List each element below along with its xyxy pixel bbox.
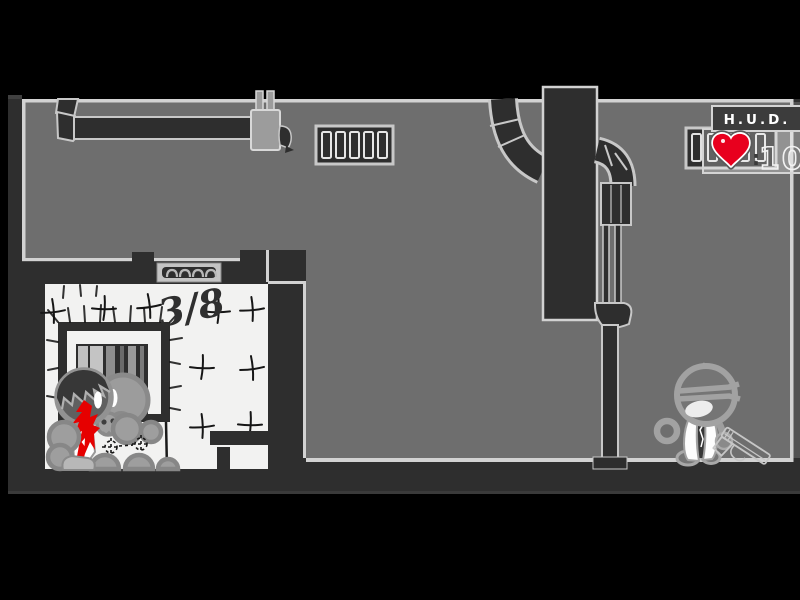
game-scene: 3/8 (0, 0, 800, 600)
thin-pipe (603, 225, 609, 307)
player-eye (94, 392, 102, 409)
shelf (210, 431, 268, 445)
pipe-base (593, 457, 627, 469)
game-stage[interactable]: 3/8 (0, 0, 800, 600)
squiggle-plaque (157, 263, 221, 282)
hud-title: H.U.D. (724, 112, 791, 128)
player-shoe (62, 456, 94, 470)
junction-box (251, 110, 280, 150)
health-value: 100 (759, 142, 800, 177)
dark-pillar (543, 87, 597, 320)
wall-vent-grille (316, 126, 393, 164)
floor-pipe (602, 325, 618, 459)
shelf-support (217, 447, 230, 469)
thin-pipe (615, 225, 621, 307)
